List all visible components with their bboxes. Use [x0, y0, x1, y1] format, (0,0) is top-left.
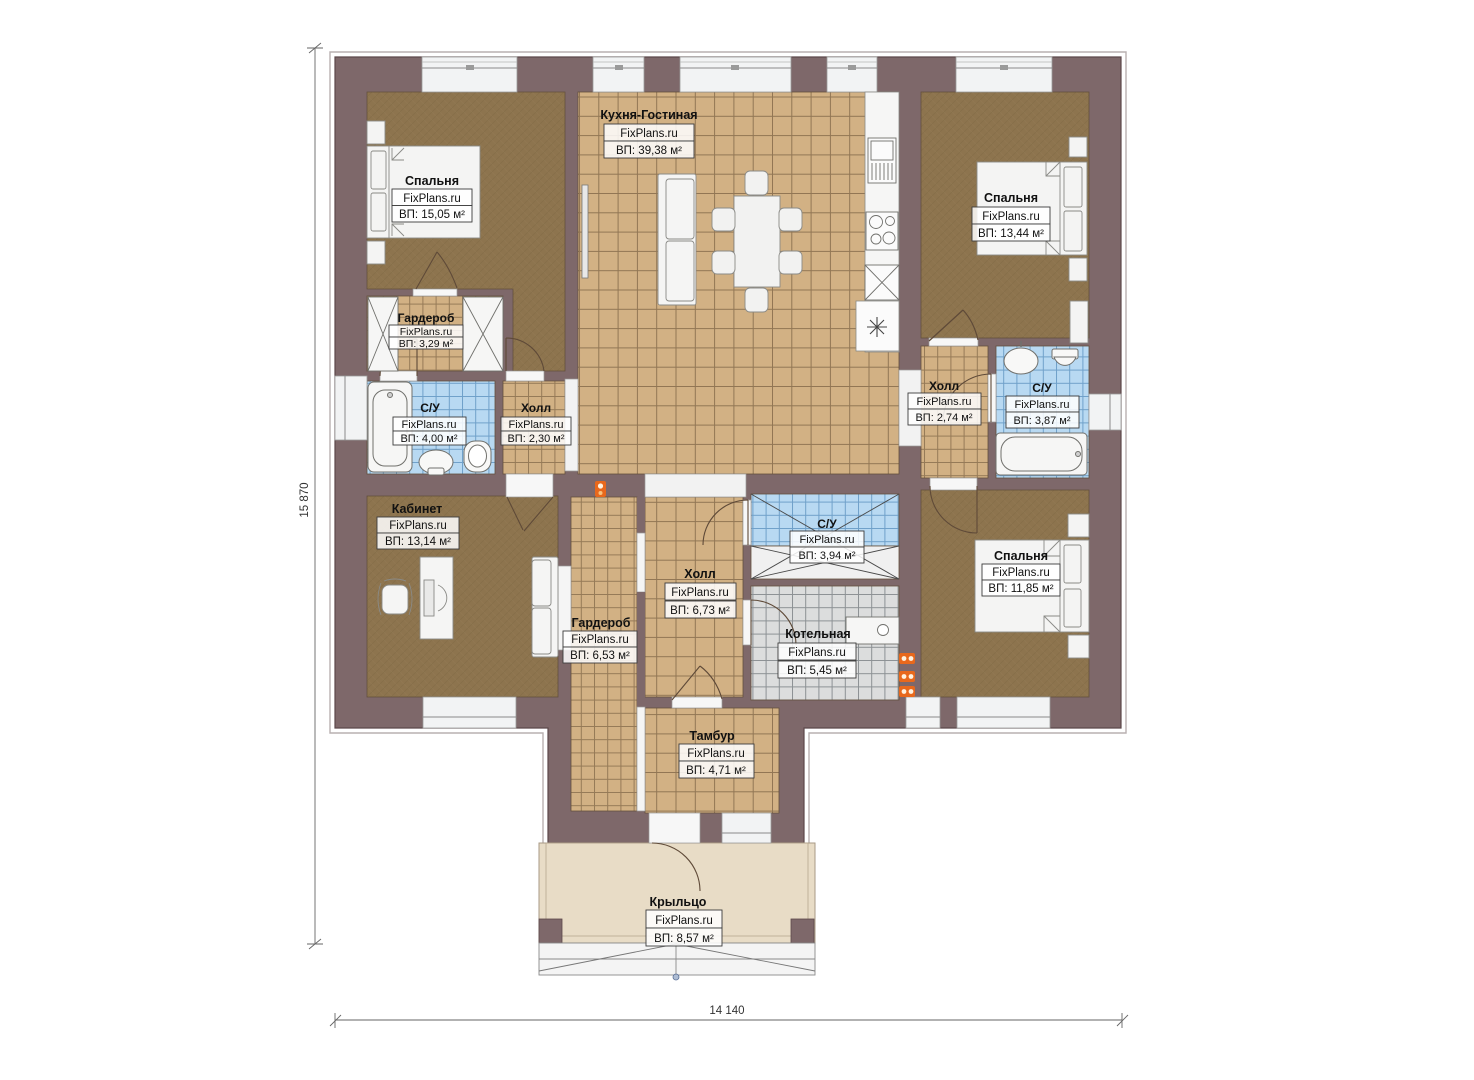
- svg-text:15 870: 15 870: [299, 482, 311, 517]
- svg-text:ВП: 3,29 м²: ВП: 3,29 м²: [399, 338, 454, 350]
- svg-text:Тамбур: Тамбур: [689, 729, 735, 743]
- svg-text:ВП: 6,53 м²: ВП: 6,53 м²: [570, 650, 630, 662]
- svg-text:14 140: 14 140: [709, 1005, 744, 1017]
- svg-text:Спальня: Спальня: [405, 174, 459, 188]
- svg-text:ВП: 5,45 м²: ВП: 5,45 м²: [787, 665, 847, 677]
- svg-text:FixPlans.ru: FixPlans.ru: [401, 419, 456, 431]
- svg-text:Кабинет: Кабинет: [392, 502, 443, 516]
- svg-text:ВП: 15,05 м²: ВП: 15,05 м²: [399, 209, 465, 221]
- svg-text:FixPlans.ru: FixPlans.ru: [655, 915, 713, 927]
- svg-text:Холл: Холл: [929, 379, 959, 393]
- svg-text:ВП: 6,73 м²: ВП: 6,73 м²: [670, 605, 730, 617]
- svg-text:ВП: 2,74 м²: ВП: 2,74 м²: [915, 412, 972, 424]
- svg-text:ВП: 39,38 м²: ВП: 39,38 м²: [616, 145, 682, 157]
- svg-text:ВП: 4,71 м²: ВП: 4,71 м²: [686, 765, 746, 777]
- svg-text:Спальня: Спальня: [994, 549, 1048, 563]
- svg-text:FixPlans.ru: FixPlans.ru: [982, 211, 1040, 223]
- svg-text:ВП: 2,30 м²: ВП: 2,30 м²: [507, 433, 564, 445]
- svg-text:FixPlans.ru: FixPlans.ru: [620, 128, 678, 140]
- svg-text:FixPlans.ru: FixPlans.ru: [799, 534, 854, 546]
- svg-text:FixPlans.ru: FixPlans.ru: [992, 567, 1050, 579]
- svg-text:ВП: 4,00 м²: ВП: 4,00 м²: [400, 433, 457, 445]
- svg-text:FixPlans.ru: FixPlans.ru: [403, 193, 461, 205]
- svg-text:ВП: 3,87 м²: ВП: 3,87 м²: [1013, 415, 1070, 427]
- svg-text:FixPlans.ru: FixPlans.ru: [1014, 399, 1069, 411]
- svg-text:С/У: С/У: [420, 401, 440, 415]
- svg-text:Котельная: Котельная: [785, 627, 850, 641]
- svg-text:Гардероб: Гардероб: [398, 311, 455, 325]
- svg-text:ВП: 8,57 м²: ВП: 8,57 м²: [654, 933, 714, 945]
- svg-text:Спальня: Спальня: [984, 191, 1038, 205]
- svg-text:Холл: Холл: [521, 401, 551, 415]
- svg-text:Крыльцо: Крыльцо: [650, 895, 707, 909]
- svg-text:ВП: 11,85 м²: ВП: 11,85 м²: [988, 583, 1053, 595]
- svg-text:FixPlans.ru: FixPlans.ru: [687, 748, 745, 760]
- svg-text:FixPlans.ru: FixPlans.ru: [788, 647, 846, 659]
- svg-text:С/У: С/У: [1032, 381, 1052, 395]
- svg-text:FixPlans.ru: FixPlans.ru: [671, 587, 729, 599]
- svg-text:FixPlans.ru: FixPlans.ru: [389, 520, 447, 532]
- svg-text:FixPlans.ru: FixPlans.ru: [400, 326, 453, 338]
- svg-text:С/У: С/У: [817, 517, 837, 531]
- svg-text:Холл: Холл: [684, 567, 715, 581]
- svg-text:ВП: 13,14 м²: ВП: 13,14 м²: [385, 536, 451, 548]
- svg-text:FixPlans.ru: FixPlans.ru: [571, 634, 629, 646]
- svg-text:FixPlans.ru: FixPlans.ru: [916, 396, 971, 408]
- svg-text:ВП: 3,94 м²: ВП: 3,94 м²: [798, 550, 855, 562]
- svg-text:Кухня-Гостиная: Кухня-Гостиная: [600, 108, 697, 122]
- svg-text:Гардероб: Гардероб: [571, 616, 630, 630]
- svg-text:ВП: 13,44 м²: ВП: 13,44 м²: [978, 228, 1044, 240]
- svg-text:FixPlans.ru: FixPlans.ru: [508, 419, 563, 431]
